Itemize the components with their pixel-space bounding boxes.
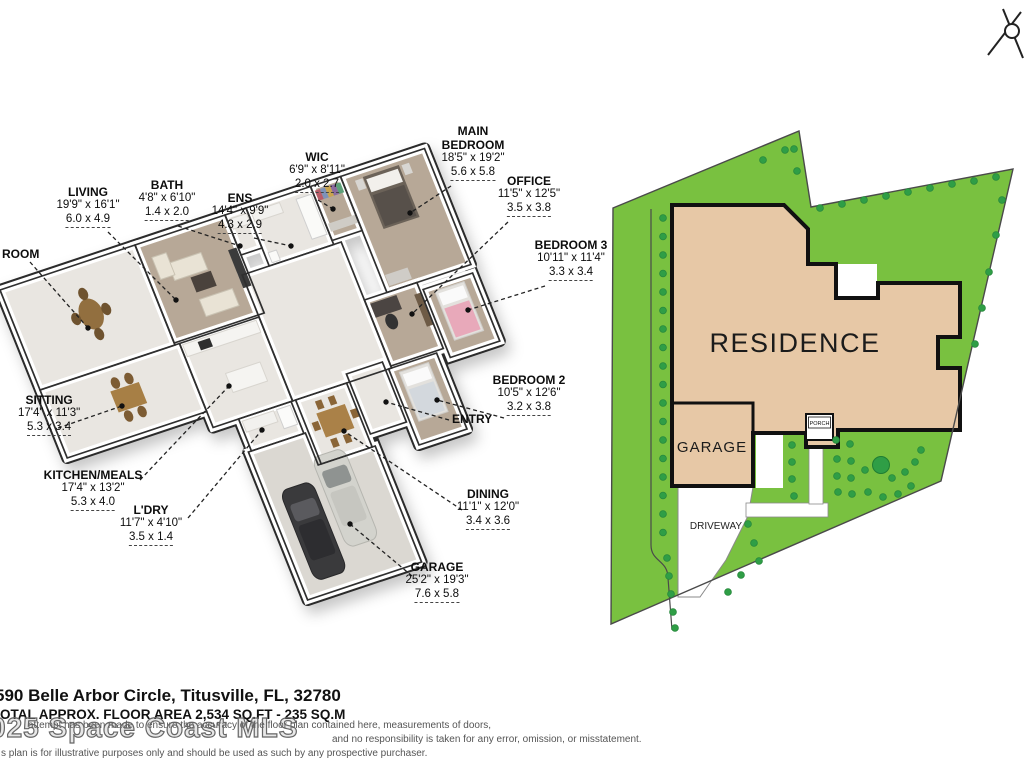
- tree-dot: [751, 540, 758, 547]
- large-tree: [873, 457, 890, 474]
- address-line: 590 Belle Arbor Circle, Titusville, FL, …: [0, 686, 341, 706]
- tree-dot: [789, 442, 796, 449]
- tree-dot: [905, 189, 912, 196]
- tree-dot: [664, 555, 671, 562]
- tree-dot: [999, 197, 1006, 204]
- tree-dot: [660, 437, 667, 444]
- residence-label: RESIDENCE: [709, 328, 880, 358]
- tree-dot: [979, 305, 986, 312]
- tree-dot: [839, 201, 846, 208]
- room-label-main-bedroom: MAINBEDROOM18'5" x 19'2"5.6 x 5.8: [441, 124, 504, 181]
- dimensions-feet: 14'4" x 9'9": [212, 205, 269, 219]
- dimensions-metres: 3.5 x 1.4: [129, 531, 173, 547]
- room-name: GARAGE: [405, 560, 468, 574]
- tree-dot: [848, 458, 855, 465]
- tree-dot: [660, 474, 667, 481]
- dimensions-metres: 6.0 x 4.9: [66, 213, 110, 229]
- leader-dot-bedroom-3: [465, 307, 470, 312]
- dimensions-feet: 19'9" x 16'1": [56, 199, 119, 213]
- room-name: L'DRY: [120, 503, 182, 517]
- dimensions-feet: 25'2" x 19'3": [405, 574, 468, 588]
- tree-dot: [794, 168, 801, 175]
- mls-watermark: 025 Space Coast MLS: [0, 712, 298, 744]
- path-strip: [746, 503, 828, 517]
- tree-dot: [895, 491, 902, 498]
- compass-icon: [988, 9, 1023, 58]
- dimensions-feet: 4'8" x 6'10": [139, 192, 196, 206]
- tree-dot: [745, 521, 752, 528]
- room-name: LIVING: [56, 185, 119, 199]
- room-name: BEDROOM 2: [493, 373, 566, 387]
- tree-dot: [660, 418, 667, 425]
- room-name: MAIN: [441, 124, 504, 138]
- dimensions-feet: 11'1" x 12'0": [457, 501, 519, 515]
- tree-dot: [660, 529, 667, 536]
- tree-dot: [760, 157, 767, 164]
- tree-dot: [660, 215, 667, 222]
- leader-dot-ldry: [259, 427, 264, 432]
- room-label-office: OFFICE11'5" x 12'5"3.5 x 3.8: [498, 174, 560, 217]
- leader-dot-garage: [347, 521, 352, 526]
- tree-dot: [660, 363, 667, 370]
- dimensions-feet: 11'7" x 4'10": [120, 517, 182, 531]
- room-label-family-room: ROOM: [2, 247, 39, 261]
- leader-dot-family-room: [85, 325, 90, 330]
- tree-dot: [972, 341, 979, 348]
- tree-dot: [889, 475, 896, 482]
- tree-dot: [908, 483, 915, 490]
- dimensions-feet: 17'4" x 11'3": [18, 407, 80, 421]
- dimensions-feet: 17'4" x 13'2": [44, 482, 143, 496]
- room-name: KITCHEN/MEALS: [44, 468, 143, 482]
- leader-dot-kitchen-meals: [226, 383, 231, 388]
- dimensions-feet: 10'11" x 11'4": [535, 252, 608, 266]
- tree-dot: [993, 174, 1000, 181]
- tree-dot: [817, 205, 824, 212]
- room-label-living: LIVING19'9" x 16'1"6.0 x 4.9: [56, 185, 119, 228]
- dimensions-metres: 7.6 x 5.8: [415, 588, 459, 604]
- site-garage-label: GARAGE: [677, 439, 747, 456]
- tree-dot: [849, 491, 856, 498]
- dimensions-feet: 10'5" x 12'6": [493, 387, 566, 401]
- tree-dot: [833, 437, 840, 444]
- dimensions-metres: 5.3 x 4.0: [71, 496, 115, 512]
- tree-dot: [912, 459, 919, 466]
- room-label-bath: BATH4'8" x 6'10"1.4 x 2.0: [139, 178, 196, 221]
- leader-dot-entry: [383, 399, 388, 404]
- tree-dot: [660, 400, 667, 407]
- tree-dot: [791, 493, 798, 500]
- leader-dot-main-bedroom: [407, 210, 412, 215]
- tree-dot: [660, 381, 667, 388]
- room-label-bedroom-2: BEDROOM 210'5" x 12'6"3.2 x 3.8: [493, 373, 566, 416]
- rear-patio: [837, 264, 877, 297]
- porch-label: PORCH: [810, 421, 830, 427]
- room-label-entry: ENTRY: [452, 412, 492, 426]
- leader-dot-bedroom-2: [434, 397, 439, 402]
- tree-dot: [949, 181, 956, 188]
- tree-dot: [660, 233, 667, 240]
- tree-dot: [660, 307, 667, 314]
- tree-dot: [782, 147, 789, 154]
- room-name: ENTRY: [452, 412, 492, 426]
- dimensions-metres: 5.3 x 3.4: [27, 421, 71, 437]
- room-label-sitting: SITTING17'4" x 11'3"5.3 x 3.4: [18, 393, 80, 436]
- tree-dot: [666, 573, 673, 580]
- room-label-ens: ENS14'4" x 9'9"4.3 x 2.9: [212, 191, 269, 234]
- tree-dot: [918, 447, 925, 454]
- room-name: BEDROOM 3: [535, 238, 608, 252]
- room-name: WIC: [289, 150, 345, 164]
- tree-dot: [668, 591, 675, 598]
- tree-dot: [971, 178, 978, 185]
- tree-dot: [862, 467, 869, 474]
- room-name: SITTING: [18, 393, 80, 407]
- disclaimer-line-3: s plan is for illustrative purposes only…: [1, 748, 427, 759]
- tree-dot: [660, 270, 667, 277]
- leader-dot-living: [173, 297, 178, 302]
- dimensions-metres: 3.2 x 3.8: [507, 401, 551, 417]
- tree-dot: [738, 572, 745, 579]
- room-name: OFFICE: [498, 174, 560, 188]
- room-name: BEDROOM: [441, 138, 504, 152]
- room-name: DINING: [457, 487, 519, 501]
- room-label-bedroom-3: BEDROOM 310'11" x 11'4"3.3 x 3.4: [535, 238, 608, 281]
- tree-dot: [725, 589, 732, 596]
- tree-dot: [865, 489, 872, 496]
- tree-dot: [848, 475, 855, 482]
- tree-dot: [660, 289, 667, 296]
- leader-dot-bath: [237, 243, 242, 248]
- tree-dot: [789, 459, 796, 466]
- dimensions-feet: 11'5" x 12'5": [498, 188, 560, 202]
- driveway-label: DRIVEWAY: [690, 521, 743, 532]
- room-label-garage: GARAGE25'2" x 19'3"7.6 x 5.8: [405, 560, 468, 603]
- leader-dot-sitting: [119, 403, 124, 408]
- tree-dot: [861, 197, 868, 204]
- room-name: BATH: [139, 178, 196, 192]
- tree-dot: [756, 558, 763, 565]
- site-plan: PORCH RESIDENCE GARAGE DRIVEWAY: [611, 131, 1013, 631]
- room-label-dining: DINING11'1" x 12'0"3.4 x 3.6: [457, 487, 519, 530]
- tree-dot: [660, 492, 667, 499]
- tree-dot: [993, 232, 1000, 239]
- tree-dot: [660, 344, 667, 351]
- tree-dot: [791, 146, 798, 153]
- dimensions-metres: 1.4 x 2.0: [145, 206, 189, 222]
- tree-dot: [986, 269, 993, 276]
- room-label-wic: WIC6'9" x 8'11"2.0 x 2.7: [289, 150, 345, 193]
- porch: PORCH: [806, 414, 833, 440]
- tree-dot: [902, 469, 909, 476]
- dimensions-feet: 18'5" x 19'2": [441, 152, 504, 166]
- dimensions-metres: 3.3 x 3.4: [549, 266, 593, 282]
- dimensions-metres: 3.5 x 3.8: [507, 202, 551, 218]
- tree-dot: [672, 625, 679, 632]
- tree-dot: [927, 185, 934, 192]
- leader-dot-ens: [288, 243, 293, 248]
- room-name: ROOM: [2, 247, 39, 261]
- leader-dot-office: [409, 311, 414, 316]
- tree-dot: [660, 326, 667, 333]
- room-name: ENS: [212, 191, 269, 205]
- dimensions-metres: 3.4 x 3.6: [466, 515, 510, 531]
- tree-dot: [834, 473, 841, 480]
- room-label-ldry: L'DRY11'7" x 4'10"3.5 x 1.4: [120, 503, 182, 546]
- tree-dot: [660, 252, 667, 259]
- side-patio: [756, 433, 783, 488]
- tree-dot: [660, 455, 667, 462]
- floorplan-page: PORCH RESIDENCE GARAGE DRIVEWAY ROOMLIVI…: [0, 0, 1024, 768]
- dimensions-feet: 6'9" x 8'11": [289, 164, 345, 178]
- tree-dot: [883, 193, 890, 200]
- tree-dot: [835, 489, 842, 496]
- leader-dot-dining: [341, 428, 346, 433]
- tree-dot: [847, 441, 854, 448]
- tree-dot: [834, 456, 841, 463]
- tree-dot: [660, 511, 667, 518]
- tree-dot: [880, 494, 887, 501]
- disclaimer-line-2: and no responsibility is taken for any e…: [332, 734, 642, 745]
- dimensions-metres: 2.0 x 2.7: [295, 178, 339, 194]
- dimensions-metres: 5.6 x 5.8: [451, 166, 495, 182]
- dimensions-metres: 4.3 x 2.9: [218, 219, 262, 235]
- tree-dot: [670, 609, 677, 616]
- leader-dot-wic: [330, 206, 335, 211]
- tree-dot: [789, 476, 796, 483]
